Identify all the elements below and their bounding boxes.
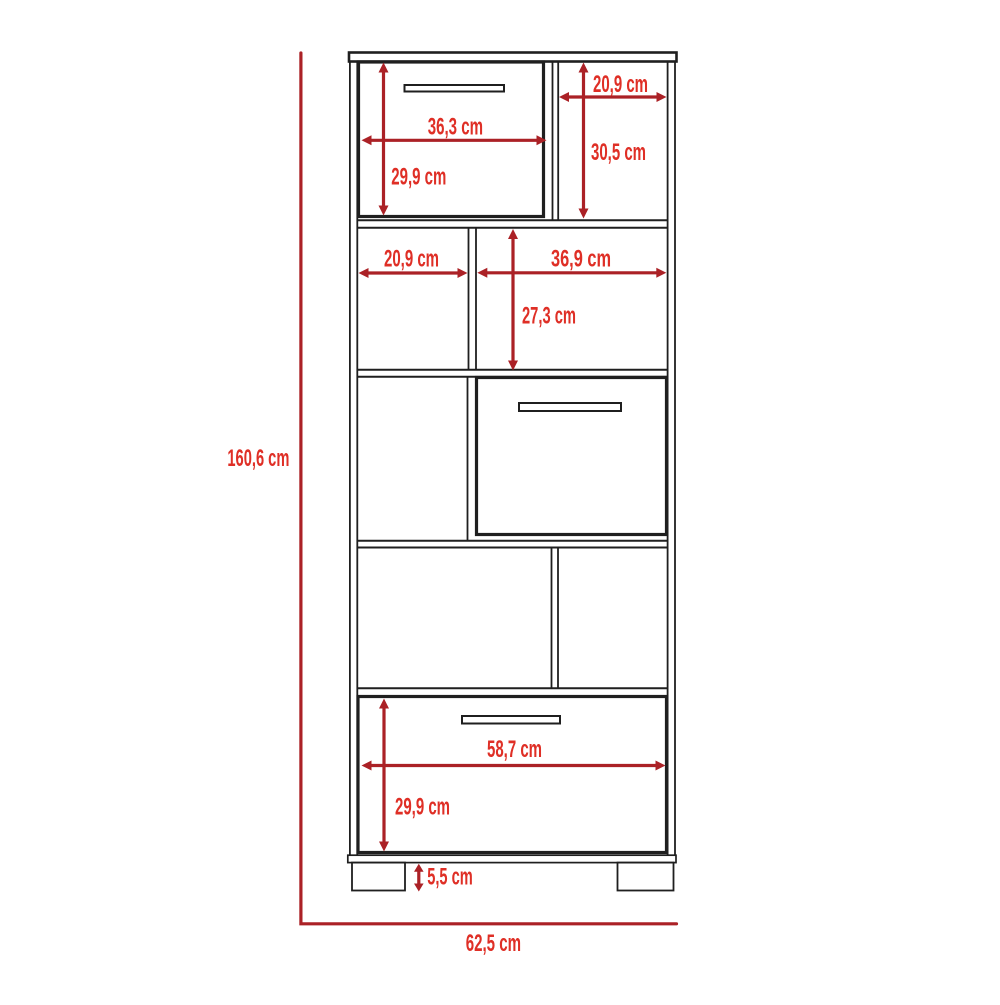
svg-text:29,9 cm: 29,9 cm (391, 163, 446, 190)
svg-text:160,6 cm: 160,6 cm (227, 445, 289, 472)
svg-text:20,9 cm: 20,9 cm (593, 71, 648, 98)
svg-text:36,9 cm: 36,9 cm (551, 245, 611, 272)
svg-text:30,5 cm: 30,5 cm (591, 139, 646, 166)
svg-text:20,9 cm: 20,9 cm (384, 245, 439, 272)
svg-text:62,5 cm: 62,5 cm (466, 930, 521, 957)
svg-text:27,3 cm: 27,3 cm (522, 303, 576, 330)
svg-text:5,5 cm: 5,5 cm (427, 864, 473, 891)
svg-text:29,9 cm: 29,9 cm (395, 794, 450, 821)
svg-text:58,7 cm: 58,7 cm (487, 736, 542, 763)
svg-text:36,3 cm: 36,3 cm (428, 114, 483, 141)
